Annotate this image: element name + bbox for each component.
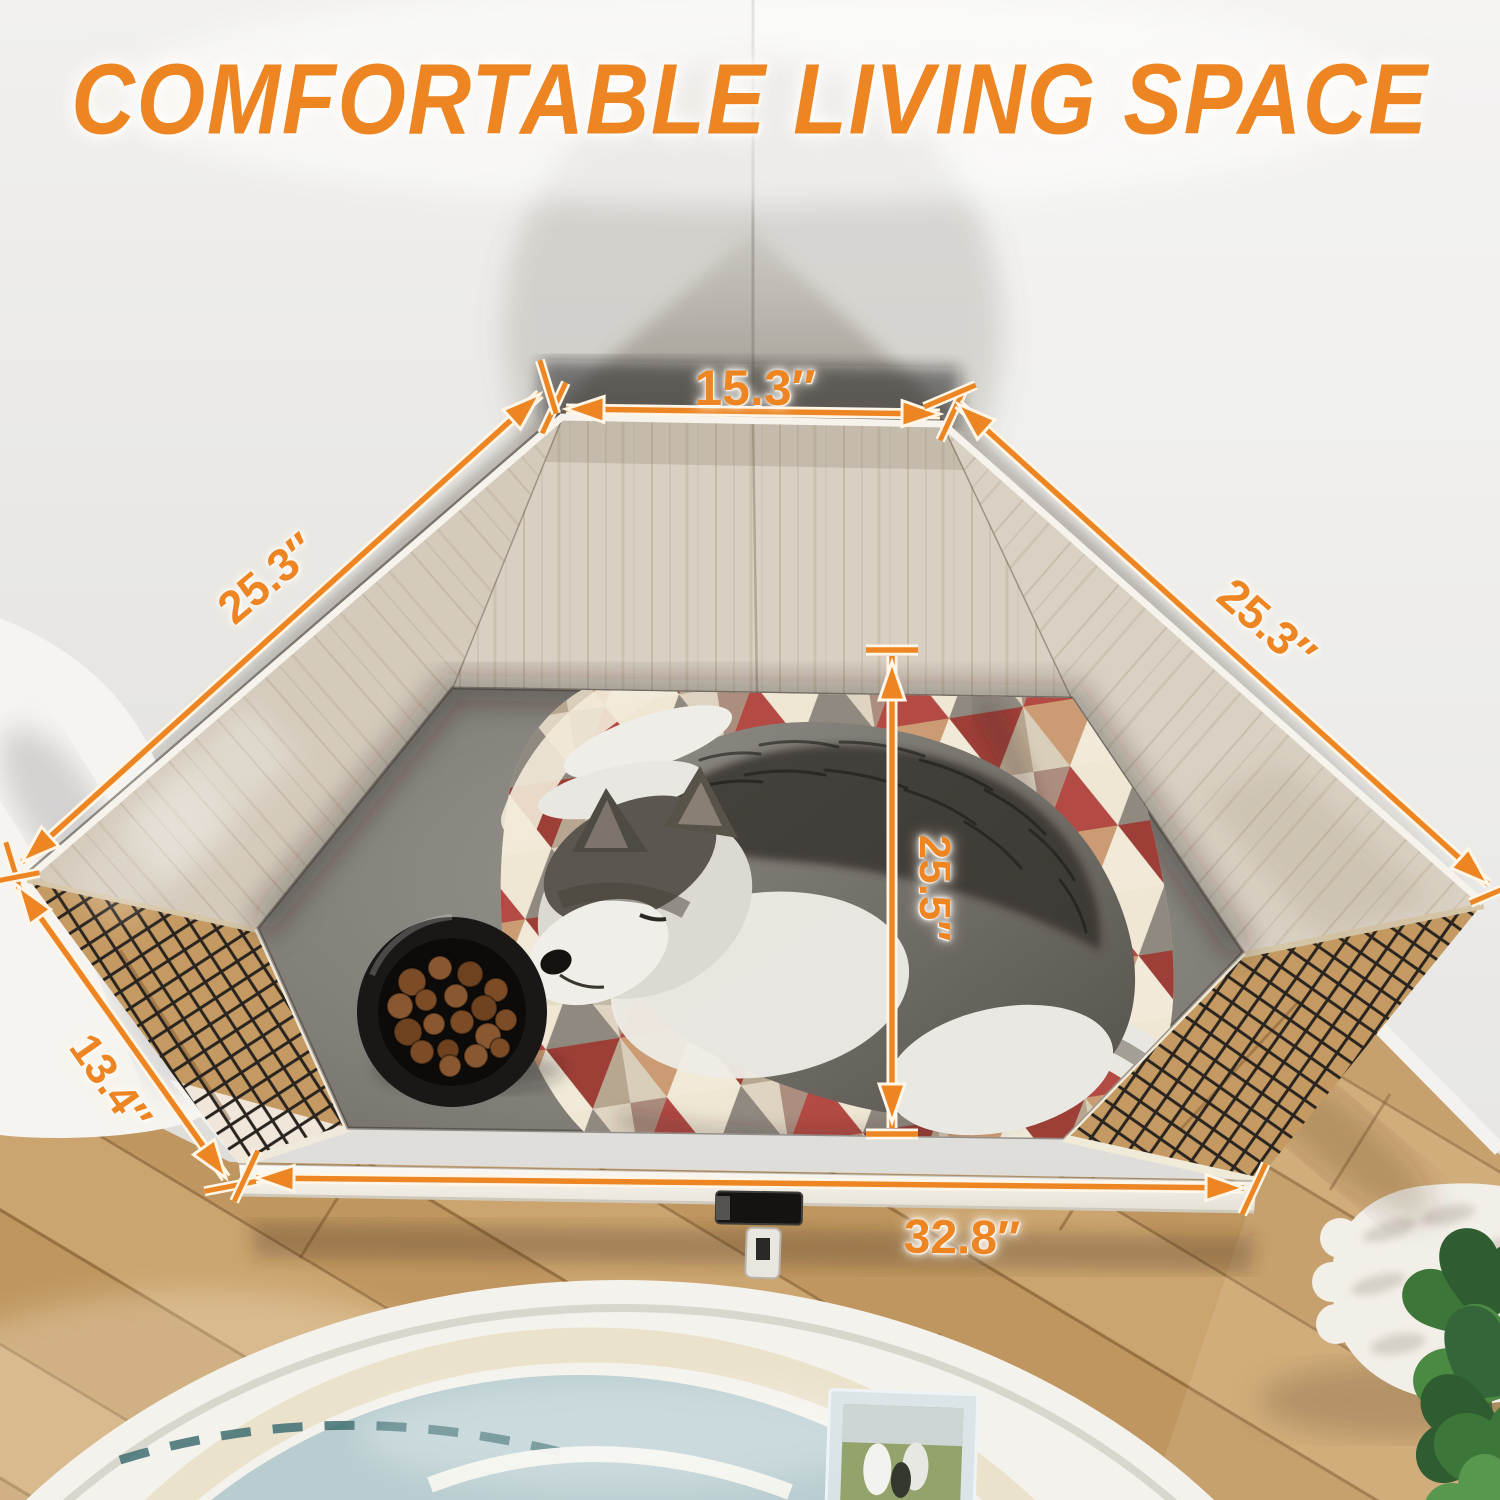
- product-image: COMFORTABLE LIVING SPACE 15.3″ 25.3″ 25.…: [0, 0, 1500, 1500]
- dimension-depth-label: 25.5″: [909, 835, 959, 942]
- page-title: COMFORTABLE LIVING SPACE: [71, 43, 1428, 158]
- dimension-back-width-label: 15.3″: [694, 359, 815, 417]
- product-photo-scene: [0, 0, 1500, 1500]
- dimension-front-width-label: 32.8″: [903, 1209, 1020, 1266]
- photo-frame: [825, 1390, 978, 1500]
